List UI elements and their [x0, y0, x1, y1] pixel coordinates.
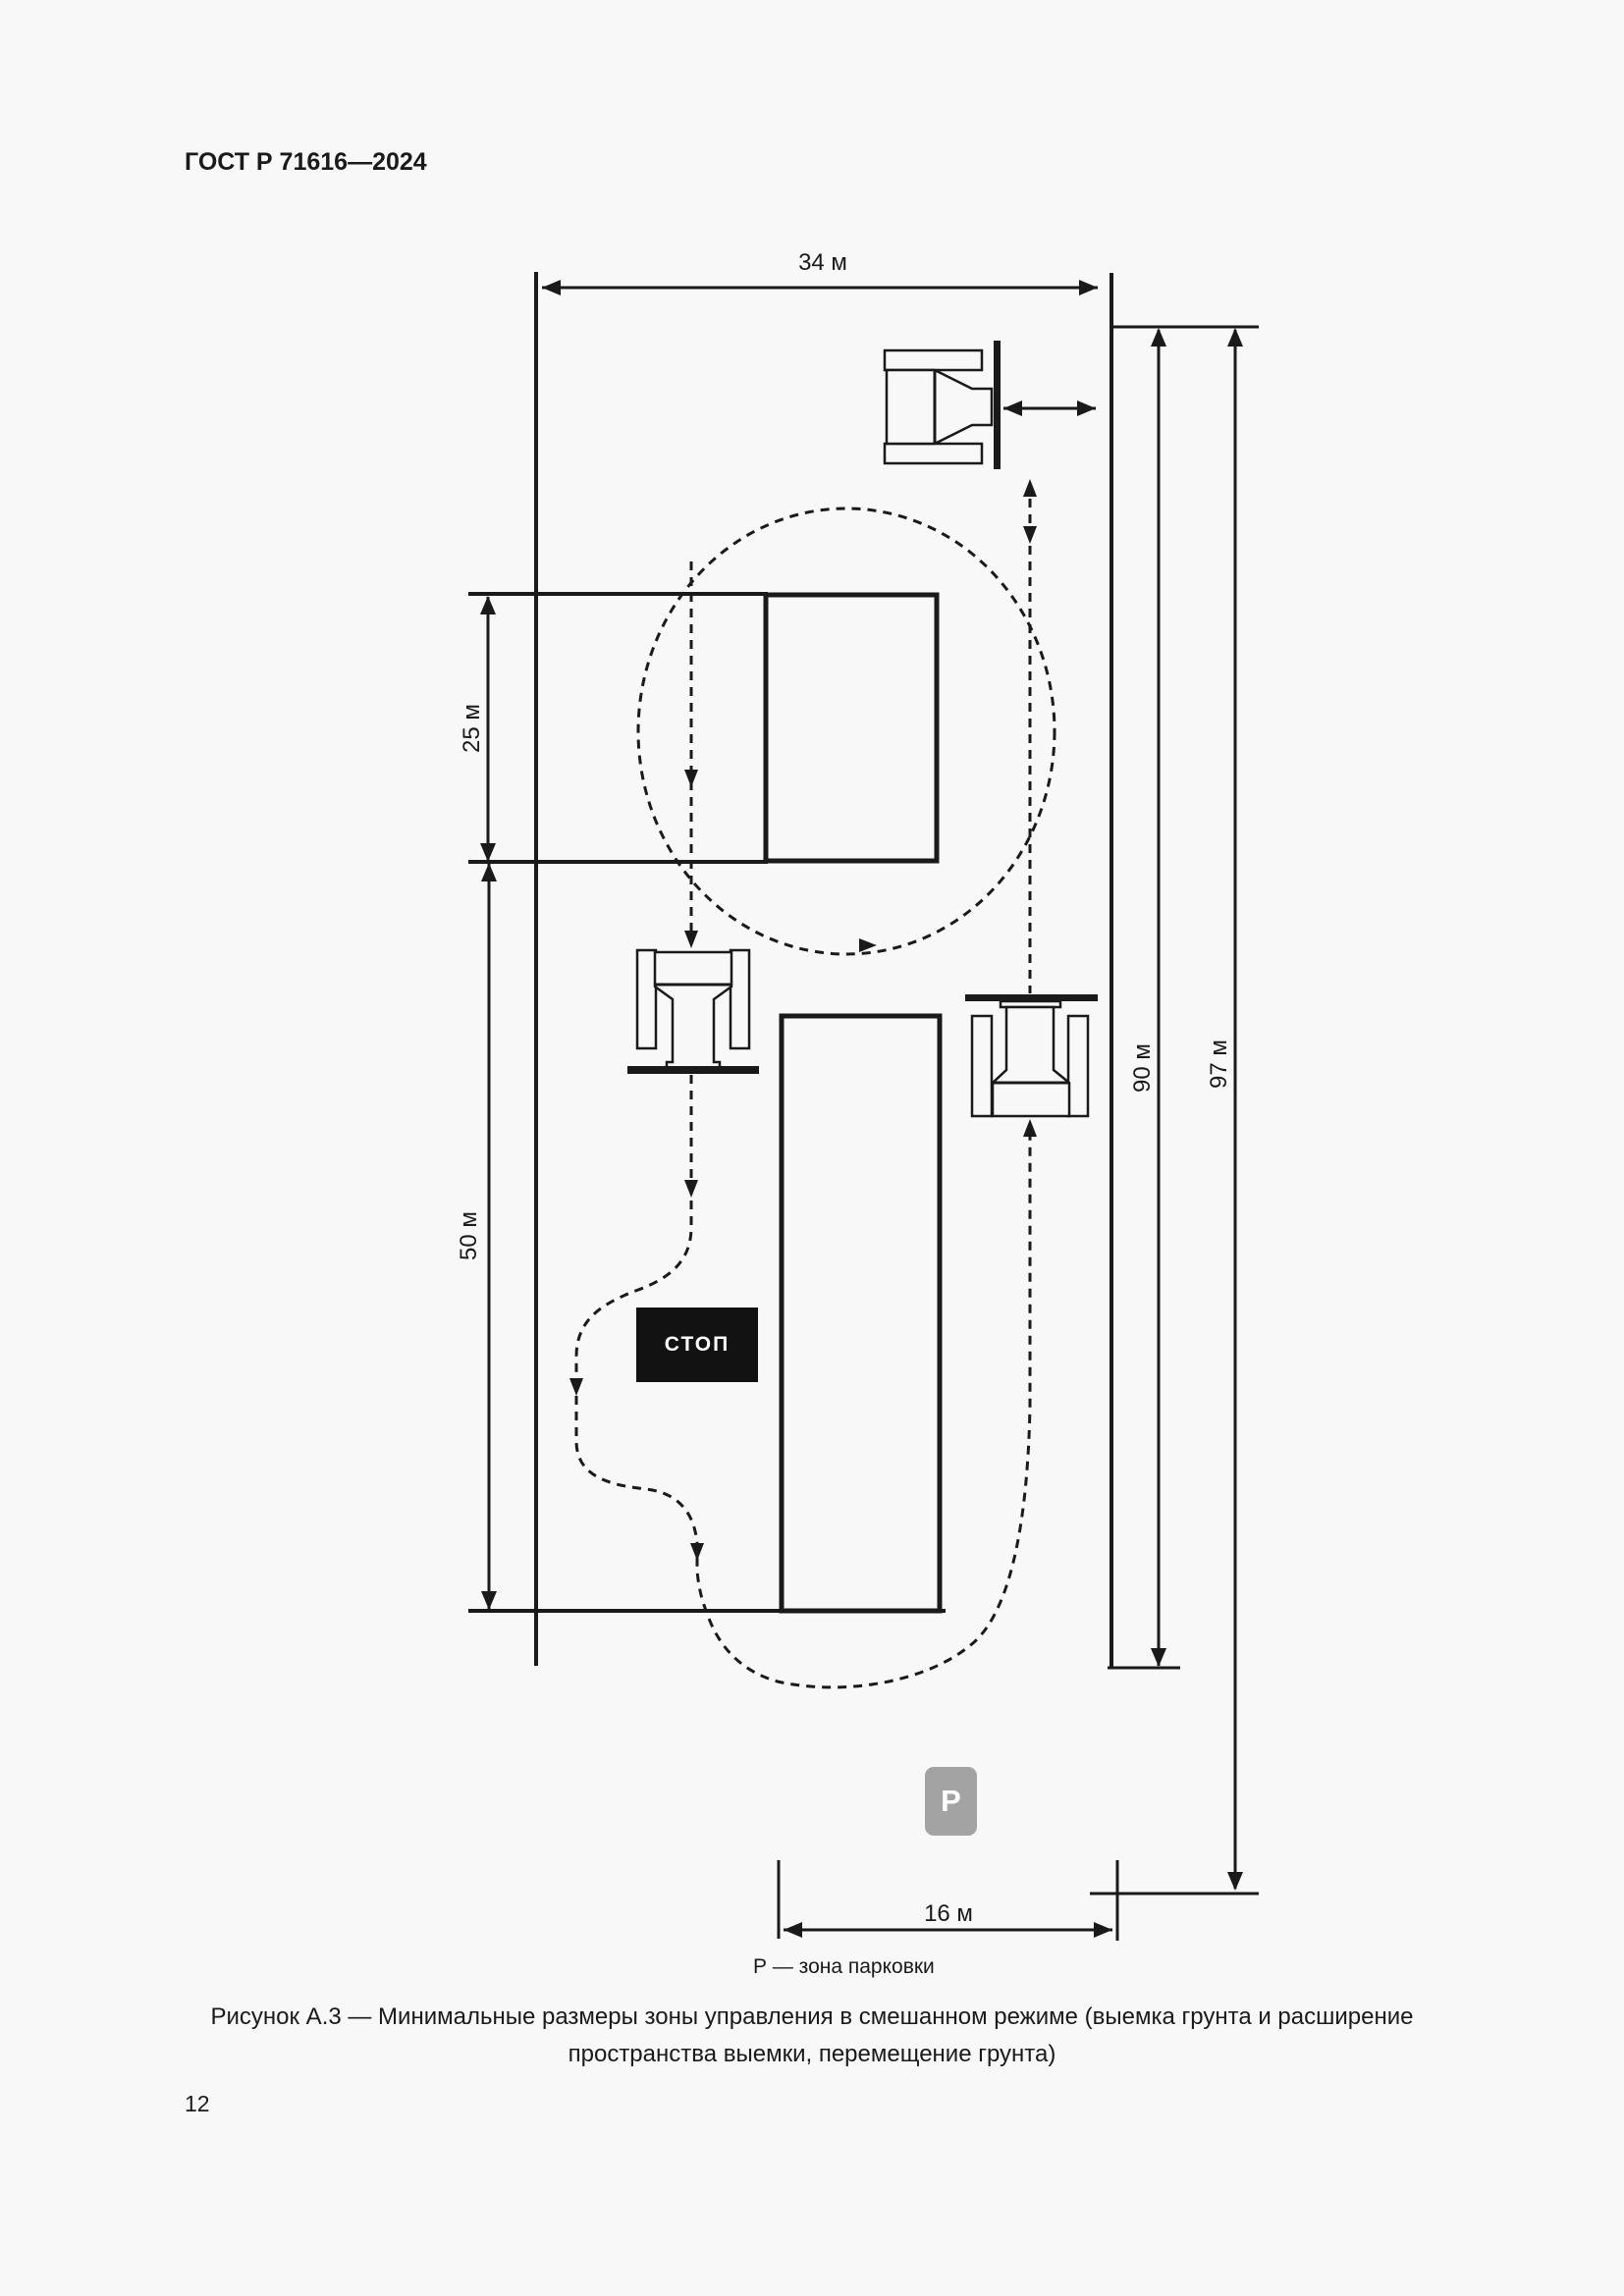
- parking-sign: P: [925, 1767, 977, 1836]
- stop-sign: СТОП: [636, 1308, 758, 1382]
- figure-caption-line1: Рисунок А.3 — Минимальные размеры зоны у…: [0, 2005, 1624, 2029]
- stop-sign-label: СТОП: [665, 1333, 730, 1357]
- blade-travel-double-arrow: [1003, 400, 1096, 416]
- bulldozer-top-icon: [885, 341, 1001, 469]
- page-number: 12: [185, 2091, 210, 2117]
- dimension-50m-label: 50 м: [458, 1211, 481, 1260]
- document-page: { "page": { "header": "ГОСТ Р 71616—2024…: [0, 0, 1624, 2296]
- dimension-16m-label: 16 м: [924, 1902, 973, 1926]
- dimension-50m: [481, 863, 497, 1610]
- legend-text: Р — зона парковки: [753, 1955, 935, 1979]
- zone-boundaries: [468, 272, 1111, 1668]
- dimension-34m-label: 34 м: [798, 251, 847, 275]
- bulldozer-right-icon: [965, 994, 1098, 1116]
- parking-sign-label: P: [941, 1784, 961, 1819]
- figure-a3-diagram: [0, 0, 1624, 2296]
- work-area-upper-rect: [766, 595, 937, 861]
- dimension-34m: [542, 280, 1098, 295]
- dimension-97m: [1090, 328, 1259, 1894]
- bulldozer-middle-icon: [627, 950, 759, 1074]
- dimension-25m-label: 25 м: [460, 704, 484, 753]
- page-title: ГОСТ Р 71616—2024: [185, 148, 427, 177]
- figure-caption-line2: пространства выемки, перемещение грунта): [0, 2043, 1624, 2066]
- dimension-97m-label: 97 м: [1208, 1040, 1231, 1089]
- work-area-lower-rect: [782, 1016, 940, 1611]
- dimension-90m-label: 90 м: [1131, 1043, 1155, 1093]
